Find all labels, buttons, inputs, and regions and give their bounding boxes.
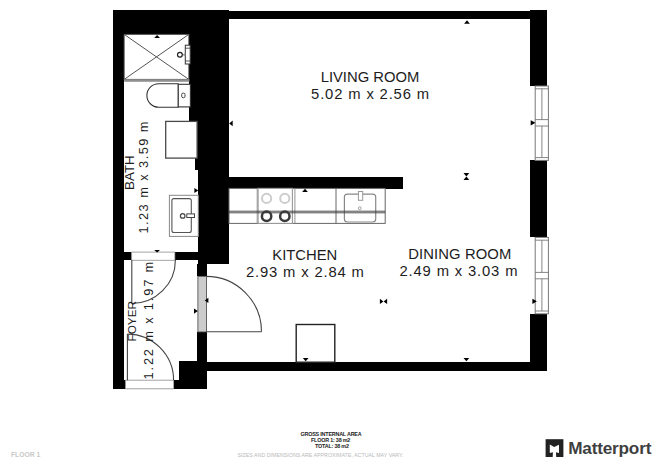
svg-text:1.22 m x 1.97 m: 1.22 m x 1.97 m — [141, 260, 156, 380]
svg-text:TOTAL: 38 m2: TOTAL: 38 m2 — [315, 443, 349, 449]
svg-text:LIVING ROOM: LIVING ROOM — [321, 69, 420, 85]
svg-text:5.02 m x 2.56 m: 5.02 m x 2.56 m — [311, 86, 430, 102]
svg-text:FLOOR 1: FLOOR 1 — [11, 451, 41, 458]
svg-text:BATH: BATH — [122, 155, 137, 190]
svg-text:2.49 m x 3.03 m: 2.49 m x 3.03 m — [399, 263, 518, 279]
svg-text:FOYER: FOYER — [125, 301, 139, 342]
svg-text:KITCHEN: KITCHEN — [272, 247, 337, 263]
svg-text:2.93 m x 2.84 m: 2.93 m x 2.84 m — [246, 264, 365, 280]
svg-text:SIZES AND DIMENSIONS ARE APPRO: SIZES AND DIMENSIONS ARE APPROXIMATE, AC… — [238, 452, 404, 458]
svg-text:Matterport: Matterport — [568, 438, 651, 458]
svg-text:GROSS INTERNAL AREA: GROSS INTERNAL AREA — [301, 431, 362, 437]
svg-text:DINING ROOM: DINING ROOM — [408, 246, 511, 262]
svg-text:FLOOR 1: 38 m2: FLOOR 1: 38 m2 — [311, 437, 350, 443]
svg-text:1.23 m x 3.59 m: 1.23 m x 3.59 m — [136, 120, 151, 234]
